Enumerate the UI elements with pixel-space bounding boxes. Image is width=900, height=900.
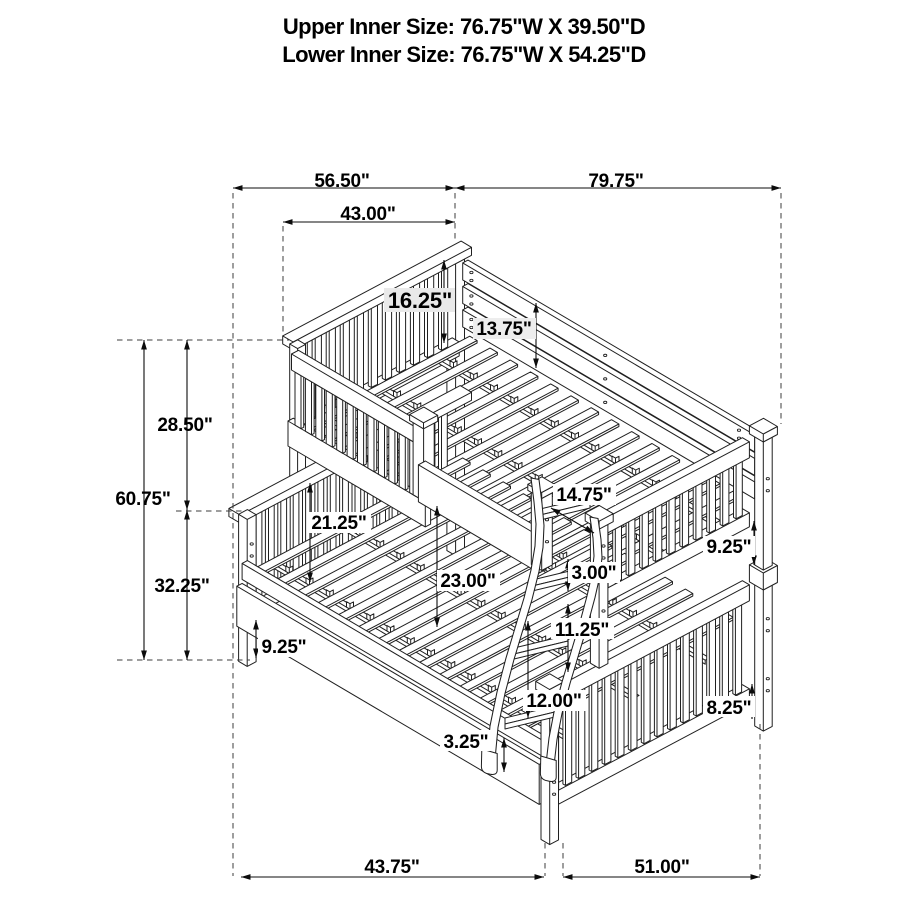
- svg-text:16.25": 16.25": [388, 288, 452, 313]
- svg-text:3.00": 3.00": [572, 563, 617, 584]
- svg-text:Lower Inner Size: 76.75"W X 54: Lower Inner Size: 76.75"W X 54.25"D: [282, 42, 646, 67]
- svg-text:51.00": 51.00": [634, 857, 689, 878]
- svg-text:32.25": 32.25": [154, 576, 209, 597]
- svg-text:28.50": 28.50": [157, 415, 212, 436]
- svg-text:43.00": 43.00": [340, 204, 395, 225]
- svg-text:Upper Inner Size: 76.75"W X 39: Upper Inner Size: 76.75"W X 39.50"D: [283, 14, 645, 39]
- svg-text:12.00": 12.00": [526, 691, 581, 712]
- svg-text:60.75": 60.75": [115, 489, 170, 510]
- svg-text:11.25": 11.25": [555, 620, 609, 641]
- svg-text:13.75": 13.75": [476, 319, 531, 340]
- svg-text:3.25": 3.25": [444, 732, 489, 753]
- svg-text:23.00": 23.00": [440, 571, 495, 592]
- svg-text:8.25": 8.25": [707, 698, 752, 719]
- svg-text:14.75": 14.75": [556, 485, 611, 506]
- svg-text:43.75": 43.75": [364, 857, 419, 878]
- svg-text:9.25": 9.25": [707, 537, 752, 558]
- svg-text:56.50": 56.50": [314, 171, 369, 192]
- svg-text:79.75": 79.75": [588, 171, 643, 192]
- svg-text:9.25": 9.25": [262, 637, 307, 658]
- svg-text:21.25": 21.25": [311, 513, 366, 534]
